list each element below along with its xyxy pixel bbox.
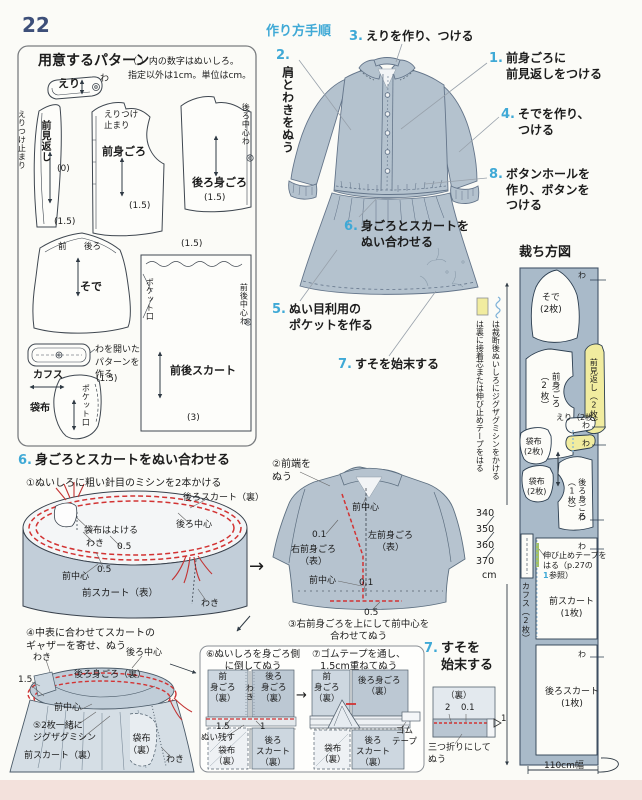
d4-leave-label: ぬい残す <box>201 733 235 744</box>
d3-side-label-2: わき <box>166 755 184 767</box>
d4-front-bodice-label: 前 身ごろ （裏） <box>210 672 236 705</box>
section-7-number: 7. <box>424 641 438 658</box>
step-3-number: 3. <box>349 29 363 46</box>
d4-back-skirt-label: 後ろ スカート （裏） <box>256 736 290 769</box>
d1-caption: ①ぬいしろに粗い針目のミシンを2本かける <box>26 477 221 490</box>
sleeve-front-label: 前 <box>58 242 67 253</box>
fusible-swatch-icon <box>477 298 488 315</box>
d3-front-center-label: 前中心 <box>54 703 81 715</box>
d1-back-center-label: 後ろ中心 <box>176 520 212 532</box>
d2-front-center-label: 前中心 <box>352 503 379 515</box>
d1-front-center-label: 前中心 <box>62 572 89 584</box>
step-8-number: 8. <box>489 167 503 184</box>
piece-collar-label: えり <box>58 77 80 91</box>
d4-side-label: わき <box>244 684 254 701</box>
tape-note-line2: はる（p.27の <box>543 561 593 571</box>
d4-1-label: 1 <box>260 722 265 733</box>
d3-back-center-label: 後ろ中心 <box>126 648 162 660</box>
step-6-label: 身ごろとスカートを ぬい合わせる <box>361 219 469 250</box>
fold-mark: わ <box>578 271 586 281</box>
d4-back-bodice-label: 後ろ 身ごろ （裏） <box>261 672 287 705</box>
front-back-center-fold-label: 前後中心わ <box>238 283 248 326</box>
d1-side-label: わき <box>86 539 104 551</box>
d4-pocket-label: 袋布 （裏） <box>214 746 240 768</box>
step-7-number: 7. <box>338 357 352 374</box>
d1-front-skirt-label: 前スカート（表） <box>82 588 158 600</box>
fold-mark: わ <box>582 439 590 449</box>
cutting-layout-title: 裁ち方図 <box>519 245 571 262</box>
seam-allowance-15: (1.5) <box>54 217 75 229</box>
dress-illustration <box>289 58 479 295</box>
piece-skirt-label: 前後スカート <box>170 364 236 378</box>
d2-01-label: 0.1 <box>312 530 326 542</box>
d2-caption3: ③右前身ごろを上にして前中心を 合わせてぬう <box>288 619 429 644</box>
sleeve-back-label: 後ろ <box>84 242 101 253</box>
fold-mark-label: わ <box>100 74 109 86</box>
fabric-length-unit: cm <box>482 570 496 582</box>
seam-allowance-15: (1.5) <box>204 193 225 205</box>
s7-01-label: 0.1 <box>461 703 475 714</box>
piece-back-bodice-label: 後ろ身ごろ <box>192 176 247 190</box>
d3-zigzag-label: ⑤2枚一緒に ジグザグミシン <box>33 721 96 744</box>
d5-pocket-label: 袋布 （裏） <box>320 744 346 766</box>
collar-stop-label: えりつけ止まり <box>16 110 26 170</box>
s7-note: 三つ折りにして ぬう <box>428 743 491 766</box>
step-1-number: 1. <box>489 51 503 68</box>
piece-sleeve-label: そで <box>80 280 102 294</box>
step-8-label: ボタンホールを 作り、ボタンを つける <box>506 167 590 214</box>
tape-note-line3: 参照） <box>549 571 573 581</box>
piece-cuff-label: カフス <box>33 369 63 382</box>
d2-left-front-label: 左前身ごろ （表） <box>368 531 413 554</box>
d5-back-skirt-label: 後ろ スカート （裏） <box>356 736 390 769</box>
collar-stop-label-2: えりつけ 止まり <box>104 110 138 132</box>
piece-front-facing-label: 前見返し <box>38 120 51 162</box>
cut-pocket-bag-label-2: 袋布 (2枚) <box>527 477 546 498</box>
pocket-opening-label-2: ポケット口 <box>80 384 90 427</box>
fold-mark: わ <box>578 542 586 552</box>
step-3-label: えりを作り、つける <box>366 29 474 45</box>
pattern-pieces-illustration <box>28 77 253 439</box>
fold-mark: わ <box>578 650 586 660</box>
pocket-opening-label: ポケット口 <box>144 278 154 321</box>
step-4-number: 4. <box>501 107 515 124</box>
seam-allowance-0: (0) <box>57 164 70 176</box>
d1-side-label-2: わき <box>201 599 219 611</box>
fold-mark: わ <box>578 513 586 523</box>
step-2-label: 肩とわきをぬう <box>279 66 295 154</box>
cut-back-skirt-label: 後ろスカート (1枚) <box>545 687 599 710</box>
section-6-number: 6. <box>18 453 32 470</box>
step-6-number: 6. <box>344 219 358 236</box>
d1-05-label-2: 0.5 <box>97 565 111 577</box>
back-center-fold-label: 後ろ中心わ <box>240 103 250 146</box>
d2-01-label-2: 0.1 <box>359 578 373 590</box>
cut-cuff-label: カフス（2枚） <box>520 582 530 643</box>
d5-back-bodice-label: 後ろ身ごろ （裏） <box>358 676 401 698</box>
d3-pocket-label: 袋布 （裏） <box>128 734 155 757</box>
d4-15-label: 1.5 <box>216 722 230 733</box>
d2-right-front-label: 右前身ごろ （表） <box>291 545 336 568</box>
fabric-length-sizes: 340 350 360 370 <box>476 506 494 570</box>
steps-header: 作り方手順 <box>266 24 331 41</box>
d2-05-label: 0.5 <box>364 608 378 620</box>
fold-mark: わ <box>582 421 590 431</box>
step-2-number: 2. <box>276 48 290 65</box>
step-1-label: 前身ごろに 前見返しをつける <box>506 51 602 82</box>
d3-side-label: わき <box>33 653 51 665</box>
legend-zigzag-note: は裁断後ぬいしろにジグザグミシンをかける <box>490 320 500 480</box>
arrow-d1-d2: → <box>249 555 264 578</box>
seam-allowance-15: (1.5) <box>181 239 202 251</box>
d2-front-center-label-2: 前中心 <box>309 576 336 588</box>
d5-front-bodice-label: 前 身ごろ （裏） <box>314 672 340 705</box>
zigzag-stitch-icon <box>496 297 500 318</box>
fabric-width-label: 110cm幅 <box>544 761 584 773</box>
step-5-label: ぬい目利用の ポケットを作る <box>289 302 373 333</box>
d1-back-skirt-label: 後ろスカート（裏） <box>183 493 264 505</box>
s7-1-label: 1 <box>501 714 506 725</box>
arrow-d4-d5: → <box>296 688 307 705</box>
d2-caption: ②前端を ぬう <box>272 458 311 484</box>
cut-collar-label: えり（2枚） <box>556 413 601 423</box>
d1-05-label: 0.5 <box>117 542 131 554</box>
seam-allowance-15: (1.5) <box>96 374 117 386</box>
d1-keep-pocket-label: 袋布はよける <box>84 526 138 538</box>
legend-icons <box>477 297 500 318</box>
d3-front-skirt-label: 前スカート（裏） <box>24 751 96 763</box>
d5-elastic-label: ゴム テープ <box>392 726 417 748</box>
piece-pocket-bag-label: 袋布 <box>30 402 50 415</box>
cut-front-skirt-label: 前スカート (1枚) <box>549 597 594 620</box>
tape-note-line1: 伸び止めテープを <box>543 551 607 561</box>
seam-allowance-3: (3) <box>187 413 200 425</box>
cut-front-bodice-label: 前身ごろ （2枚） <box>538 372 560 410</box>
arrow-to-diagram-4 <box>237 616 250 631</box>
s7-ura-label: （裏） <box>446 691 472 702</box>
cut-pocket-bag-label: 袋布 (2枚) <box>524 437 543 458</box>
cut-sleeve-label: そで (2枚) <box>540 293 562 316</box>
d3-back-bodice-label: 後ろ身ごろ（裏） <box>74 670 146 682</box>
section-7-heading: すそを 始末する <box>441 641 493 675</box>
tape-note-ref: 1 <box>543 571 549 581</box>
step-5-number: 5. <box>272 302 286 319</box>
step-7-label: すそを始末する <box>355 357 439 373</box>
s7-2-label: 2 <box>445 703 450 714</box>
section-6-heading: 身ごろとスカートをぬい合わせる <box>35 453 230 470</box>
seam-allowance-15: (1.5) <box>129 201 150 213</box>
d5-caption: ⑦ゴムテープを通し、 1.5cm重ねてぬう <box>312 649 405 674</box>
d4-caption: ⑥ぬいしろを身ごろ側 に倒してぬう <box>206 649 300 674</box>
page-number: 22 <box>22 12 50 38</box>
step-4-label: そでを作り、 つける <box>518 107 590 138</box>
legend-fusible-note: は裏に接着芯または伸び止めテープをはる <box>474 320 484 472</box>
d3-15-label: 1.5 <box>18 675 32 687</box>
pattern-box-note: （ ）内の数字はぬいしろ。 指定以外は1cm。単位はcm。 <box>128 56 251 83</box>
piece-front-bodice-label: 前身ごろ <box>102 145 146 159</box>
